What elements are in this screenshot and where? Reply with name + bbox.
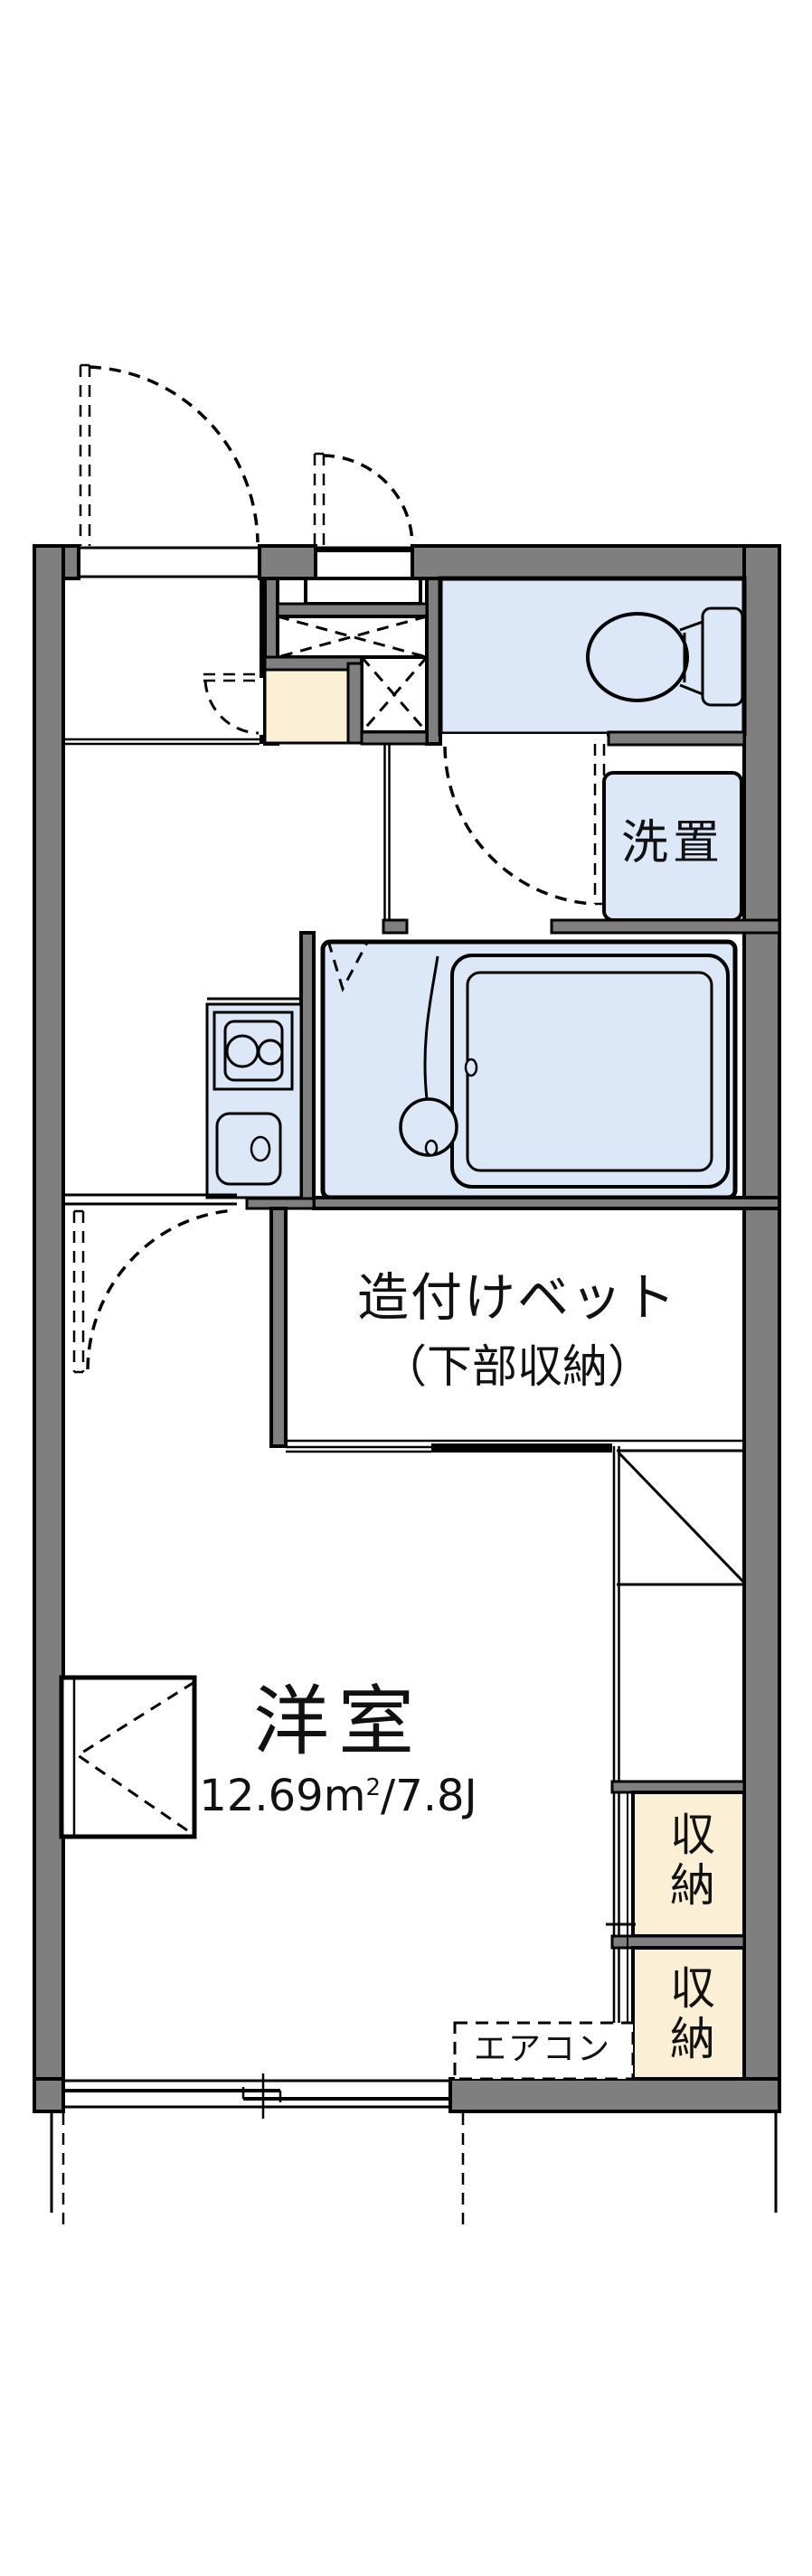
topleft-room-right-wall [260, 578, 265, 678]
toilet-tank [703, 608, 742, 705]
genkan-floor [265, 670, 348, 743]
bed-label-line2: （下部収納） [382, 1342, 653, 1391]
entrance-band-top [278, 604, 427, 616]
entrance-step [306, 578, 420, 604]
entrance-band-bottom [362, 732, 427, 744]
sink-drain [251, 1137, 269, 1161]
shower-drain-dot [426, 1141, 437, 1155]
bathtub-outer [452, 955, 728, 1187]
washroom-bottom-wall-right [552, 920, 779, 933]
hall-door-caps [74, 1211, 83, 1372]
column-double-line [614, 1446, 619, 2079]
area-prefix: 12.69m [199, 1771, 365, 1821]
washroom-bottom-wall-left [383, 920, 407, 933]
entrance-door-arc [323, 456, 412, 544]
entrance-strip [348, 663, 362, 743]
wall-left [34, 546, 63, 2111]
wall-bottom-left-corner [34, 2079, 63, 2111]
hall-door-leaf [74, 1211, 83, 1372]
main-room-name: 洋室 [253, 1681, 423, 1763]
storage-lower-label: 収納 [665, 1964, 713, 2065]
wall-top-mid [260, 546, 316, 578]
aircon-label: エアコン [474, 2033, 611, 2068]
bed-left-wall [271, 1208, 286, 1446]
floorplan-canvas: 洗置 造付けベット （下部収納） 洋室 12.69m2/7.8J 収納 収納 エ… [0, 0, 812, 2576]
entrance-door-leaf [315, 454, 324, 546]
toilet-doorway-gap [442, 734, 607, 744]
bed-bottom-thick-bar [431, 1443, 612, 1453]
storage-upper-label: 収納 [665, 1810, 713, 1912]
toilet-bottom-wall [609, 732, 744, 745]
outer-door-leaf [80, 365, 90, 546]
stove-burner-left [227, 1036, 258, 1067]
bed-bottom-double-line [286, 1447, 431, 1452]
bath-bed-wall [314, 1198, 779, 1208]
wall-right [744, 546, 779, 2111]
toilet-door-arc [445, 747, 592, 904]
outer-door-arc [90, 367, 258, 542]
wall-top-right [412, 546, 779, 578]
kitchen-bath-divider-wall [301, 933, 314, 1204]
entrance-alcove [316, 550, 412, 578]
area-suffix: /7.8J [381, 1771, 477, 1821]
top-opening-left [80, 550, 258, 575]
washer-label: 洗置 [621, 818, 724, 869]
topleft-room-right-wall-stub [260, 735, 265, 744]
kitchen-bottom-double-line [63, 1195, 237, 1204]
topleft-room-bottom-line [63, 739, 260, 744]
fridge-diagonal [618, 1453, 744, 1583]
bathtub-handle [466, 1059, 477, 1076]
bottom-window-frame [63, 2081, 450, 2107]
genkan-door-leaf [203, 674, 260, 681]
kitchen-sink [217, 1114, 280, 1184]
toilet-bowl [588, 614, 687, 700]
wall-bottom-right [450, 2079, 779, 2111]
washroom-left-partition [385, 744, 390, 920]
stove-burner-right [259, 1040, 282, 1064]
main-room-area: 12.69m2/7.8J [199, 1773, 477, 1820]
bed-label-line1: 造付けベット [357, 1271, 677, 1327]
genkan-door-arc [205, 681, 259, 733]
area-superscript: 2 [365, 1774, 381, 1801]
hall-door-arc [88, 1210, 235, 1369]
